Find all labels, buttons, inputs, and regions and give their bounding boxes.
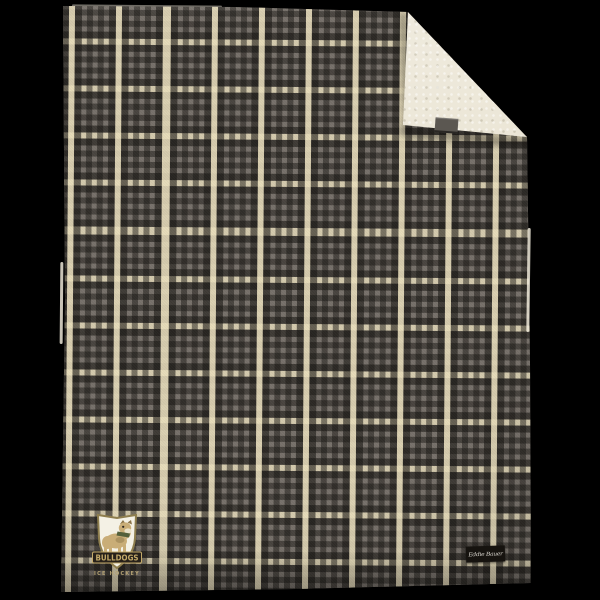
- team-logo: BULLDOGS ICE HOCKEY: [91, 512, 143, 578]
- team-subtitle-text: ICE HOCKEY: [94, 571, 140, 577]
- corner-care-tag: [435, 117, 459, 134]
- plaid-fabric: [0, 0, 600, 600]
- team-name-text: BULLDOGS: [96, 554, 139, 563]
- plaid-blanket: [0, 0, 600, 600]
- sherpa-edge-sliver-left: [60, 262, 64, 344]
- brand-label: Eddie Bauer: [466, 545, 506, 562]
- brand-label-text: Eddie Bauer: [468, 550, 503, 557]
- sherpa-edge-sliver-right: [526, 228, 530, 332]
- product-photo: Eddie Bauer BULLDOGS ICE HOCKEY: [0, 0, 600, 600]
